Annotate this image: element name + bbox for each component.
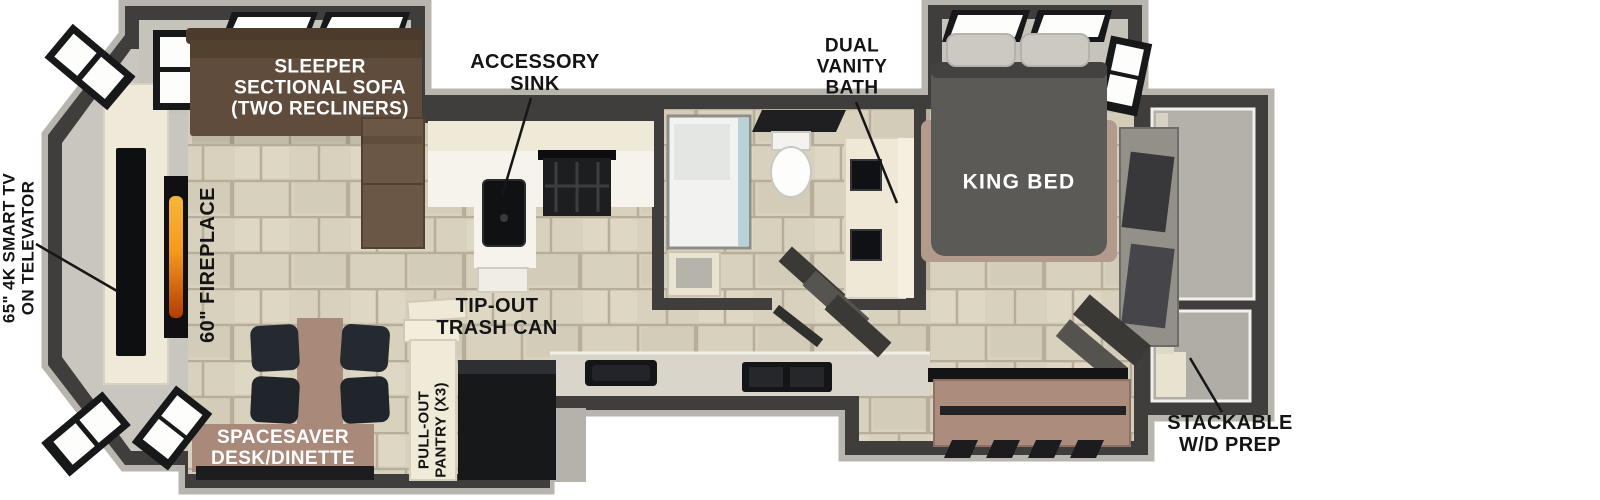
desk-column <box>297 318 343 440</box>
range-grate-lines <box>545 162 609 212</box>
refrigerator-top <box>458 360 556 374</box>
kitchen-counter-top <box>428 121 654 153</box>
shower-bench <box>674 124 730 180</box>
wd-prep-label: STACKABLE W/D PREP <box>1167 412 1292 456</box>
trash-can-label: TIP-OUT TRASH CAN <box>436 295 557 339</box>
sofa-back-band <box>190 40 422 58</box>
dinette-chair-3 <box>339 323 390 372</box>
refrigerator <box>458 372 556 480</box>
wd-prep-label-line1: STACKABLE <box>1167 412 1292 434</box>
sofa-label-line3: (TWO RECLINERS) <box>231 99 409 120</box>
king-bed <box>931 62 1107 256</box>
accessory-sink-label: ACCESSORY SINK <box>470 51 600 95</box>
desk-label-line2: DESK/DINETTE <box>211 449 355 470</box>
king-bed-label: KING BED <box>963 170 1076 193</box>
sink-cabinet-step <box>478 268 528 292</box>
cooktop-cell-left <box>749 367 783 387</box>
desk-label: SPACESAVER DESK/DINETTE <box>211 428 355 470</box>
dual-vanity-label-line3: BATH <box>817 78 888 99</box>
bath-bottom-wall-left <box>652 298 772 310</box>
wardrobe-door-top <box>1122 152 1175 233</box>
king-pillow-right <box>1021 34 1089 66</box>
floorplan-canvas: 65" 4K SMART TV ON TELEVATOR 60" FIREPLA… <box>0 0 1600 500</box>
vanity-sink-2 <box>851 230 881 260</box>
accessory-sink-label-line1: ACCESSORY <box>470 51 600 73</box>
pantry-label-line2: PANTRY (X3) <box>433 382 450 478</box>
sofa-shadow <box>192 136 422 144</box>
smart-tv <box>116 148 146 356</box>
tv-label: 65" 4K SMART TV ON TELEVATOR <box>0 173 37 323</box>
bath-skylight <box>752 110 846 132</box>
tv-label-line1: 65" 4K SMART TV <box>0 173 19 323</box>
dual-vanity-label-line1: DUAL <box>817 37 888 58</box>
king-pillow-left <box>947 34 1015 66</box>
trash-can-label-line1: TIP-OUT <box>436 295 557 317</box>
dinette-chair-2 <box>250 376 300 424</box>
dual-vanity-label: DUAL VANITY BATH <box>817 37 888 100</box>
wd-prep-corner <box>1156 352 1186 397</box>
vanity-backsplash <box>898 138 914 298</box>
sofa-label-line1: SLEEPER <box>231 58 409 79</box>
dinette-chair-1 <box>250 324 300 372</box>
bath-linen-cabinet-inset <box>676 258 712 288</box>
slide-corner-window-glass-bottom <box>160 72 190 103</box>
fireplace-flames <box>169 196 183 318</box>
wd-prep-label-line2: W/D PREP <box>1167 434 1292 456</box>
fireplace-label: 60" FIREPLACE <box>197 187 219 343</box>
trash-can-label-line2: TRASH CAN <box>436 317 557 339</box>
cooktop-cell-right <box>790 367 824 387</box>
vanity-sink-1 <box>851 160 881 190</box>
sofa-label-line2: SECTIONAL SOFA <box>231 79 409 100</box>
main-sink-inner <box>592 365 650 381</box>
slide-corner-window-glass-top <box>160 37 190 67</box>
pantry-label: PULL-OUT PANTRY (X3) <box>417 382 450 478</box>
accessory-sink-drain <box>500 214 508 222</box>
entry-step <box>552 408 586 482</box>
accessory-sink-label-line2: SINK <box>470 73 600 95</box>
dual-vanity-label-line2: VANITY <box>817 58 888 79</box>
dinette-chair-4 <box>340 376 390 424</box>
desk-label-line1: SPACESAVER <box>211 428 355 449</box>
kitchen-top-wall <box>420 95 655 123</box>
tv-label-line2: ON TELEVATOR <box>19 173 38 323</box>
dresser-mid-band <box>940 406 1126 415</box>
pantry-label-line1: PULL-OUT <box>417 382 434 478</box>
shower-glass <box>738 118 749 246</box>
toilet-bowl <box>771 147 811 197</box>
sofa-label: SLEEPER SECTIONAL SOFA (TWO RECLINERS) <box>231 58 409 121</box>
